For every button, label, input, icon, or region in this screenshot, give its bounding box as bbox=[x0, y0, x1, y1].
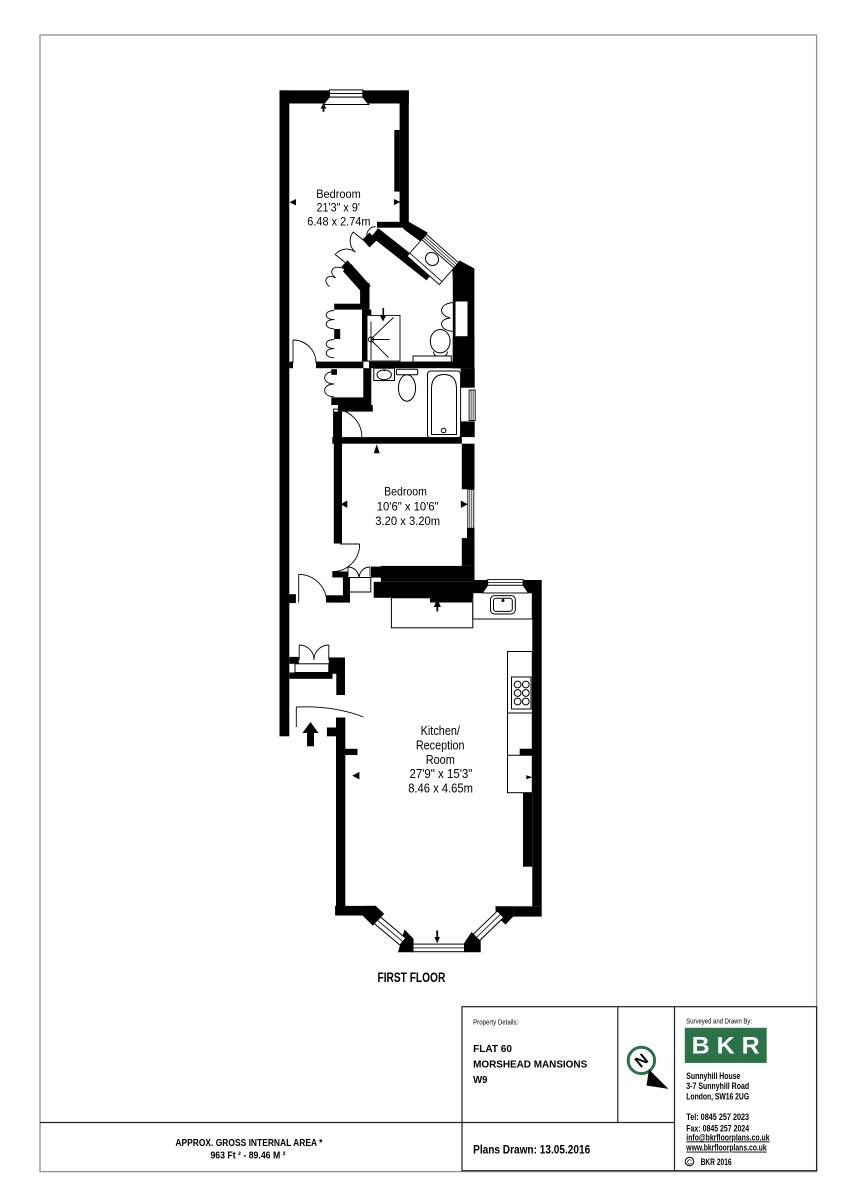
svg-text:FIRST FLOOR: FIRST FLOOR bbox=[378, 970, 446, 985]
svg-text:27'9" x 15'3": 27'9" x 15'3" bbox=[409, 767, 472, 781]
svg-text:info@bkrfloorplans.co.uk: info@bkrfloorplans.co.uk bbox=[686, 1132, 770, 1142]
svg-text:Sunnyhill House: Sunnyhill House bbox=[686, 1071, 740, 1081]
svg-text:MORSHEAD MANSIONS: MORSHEAD MANSIONS bbox=[473, 1059, 587, 1071]
svg-text:Bedroom: Bedroom bbox=[384, 485, 427, 499]
svg-text:Plans Drawn: 13.05.2016: Plans Drawn: 13.05.2016 bbox=[473, 1144, 590, 1156]
svg-text:C: C bbox=[687, 1160, 692, 1167]
svg-text:3-7 Sunnyhill Road: 3-7 Sunnyhill Road bbox=[686, 1081, 749, 1091]
svg-text:www.bkrfloorplans.co.uk: www.bkrfloorplans.co.uk bbox=[686, 1143, 768, 1153]
svg-text:Room: Room bbox=[426, 753, 455, 767]
svg-text:10'6" x 10'6": 10'6" x 10'6" bbox=[377, 499, 439, 513]
svg-text:3.20 x 3.20m: 3.20 x 3.20m bbox=[375, 514, 440, 528]
svg-text:Bedroom: Bedroom bbox=[316, 187, 361, 201]
svg-text:8.46 x 4.65m: 8.46 x 4.65m bbox=[408, 781, 473, 795]
svg-text:B K R: B K R bbox=[692, 1033, 760, 1060]
svg-text:APPROX. GROSS INTERNAL AREA *: APPROX. GROSS INTERNAL AREA * bbox=[175, 1138, 322, 1149]
svg-text:21'3" x 9': 21'3" x 9' bbox=[317, 201, 360, 215]
svg-text:BKR 2016: BKR 2016 bbox=[701, 1157, 732, 1167]
svg-text:963 Ft ² - 89.46 M ²: 963 Ft ² - 89.46 M ² bbox=[210, 1151, 286, 1162]
svg-text:Tel: 0845 257 2023: Tel: 0845 257 2023 bbox=[686, 1112, 749, 1122]
svg-text:Property Details:: Property Details: bbox=[473, 1020, 518, 1027]
svg-text:6.48 x 2.74m: 6.48 x 2.74m bbox=[307, 214, 370, 228]
svg-text:Reception: Reception bbox=[416, 739, 465, 753]
svg-text:Surveyed and Drawn By:: Surveyed and Drawn By: bbox=[686, 1018, 752, 1025]
svg-text:London, SW16 2UG: London, SW16 2UG bbox=[686, 1091, 749, 1101]
svg-text:FLAT 60: FLAT 60 bbox=[473, 1043, 512, 1055]
svg-text:W9: W9 bbox=[473, 1074, 488, 1086]
svg-text:Kitchen/: Kitchen/ bbox=[421, 724, 461, 738]
